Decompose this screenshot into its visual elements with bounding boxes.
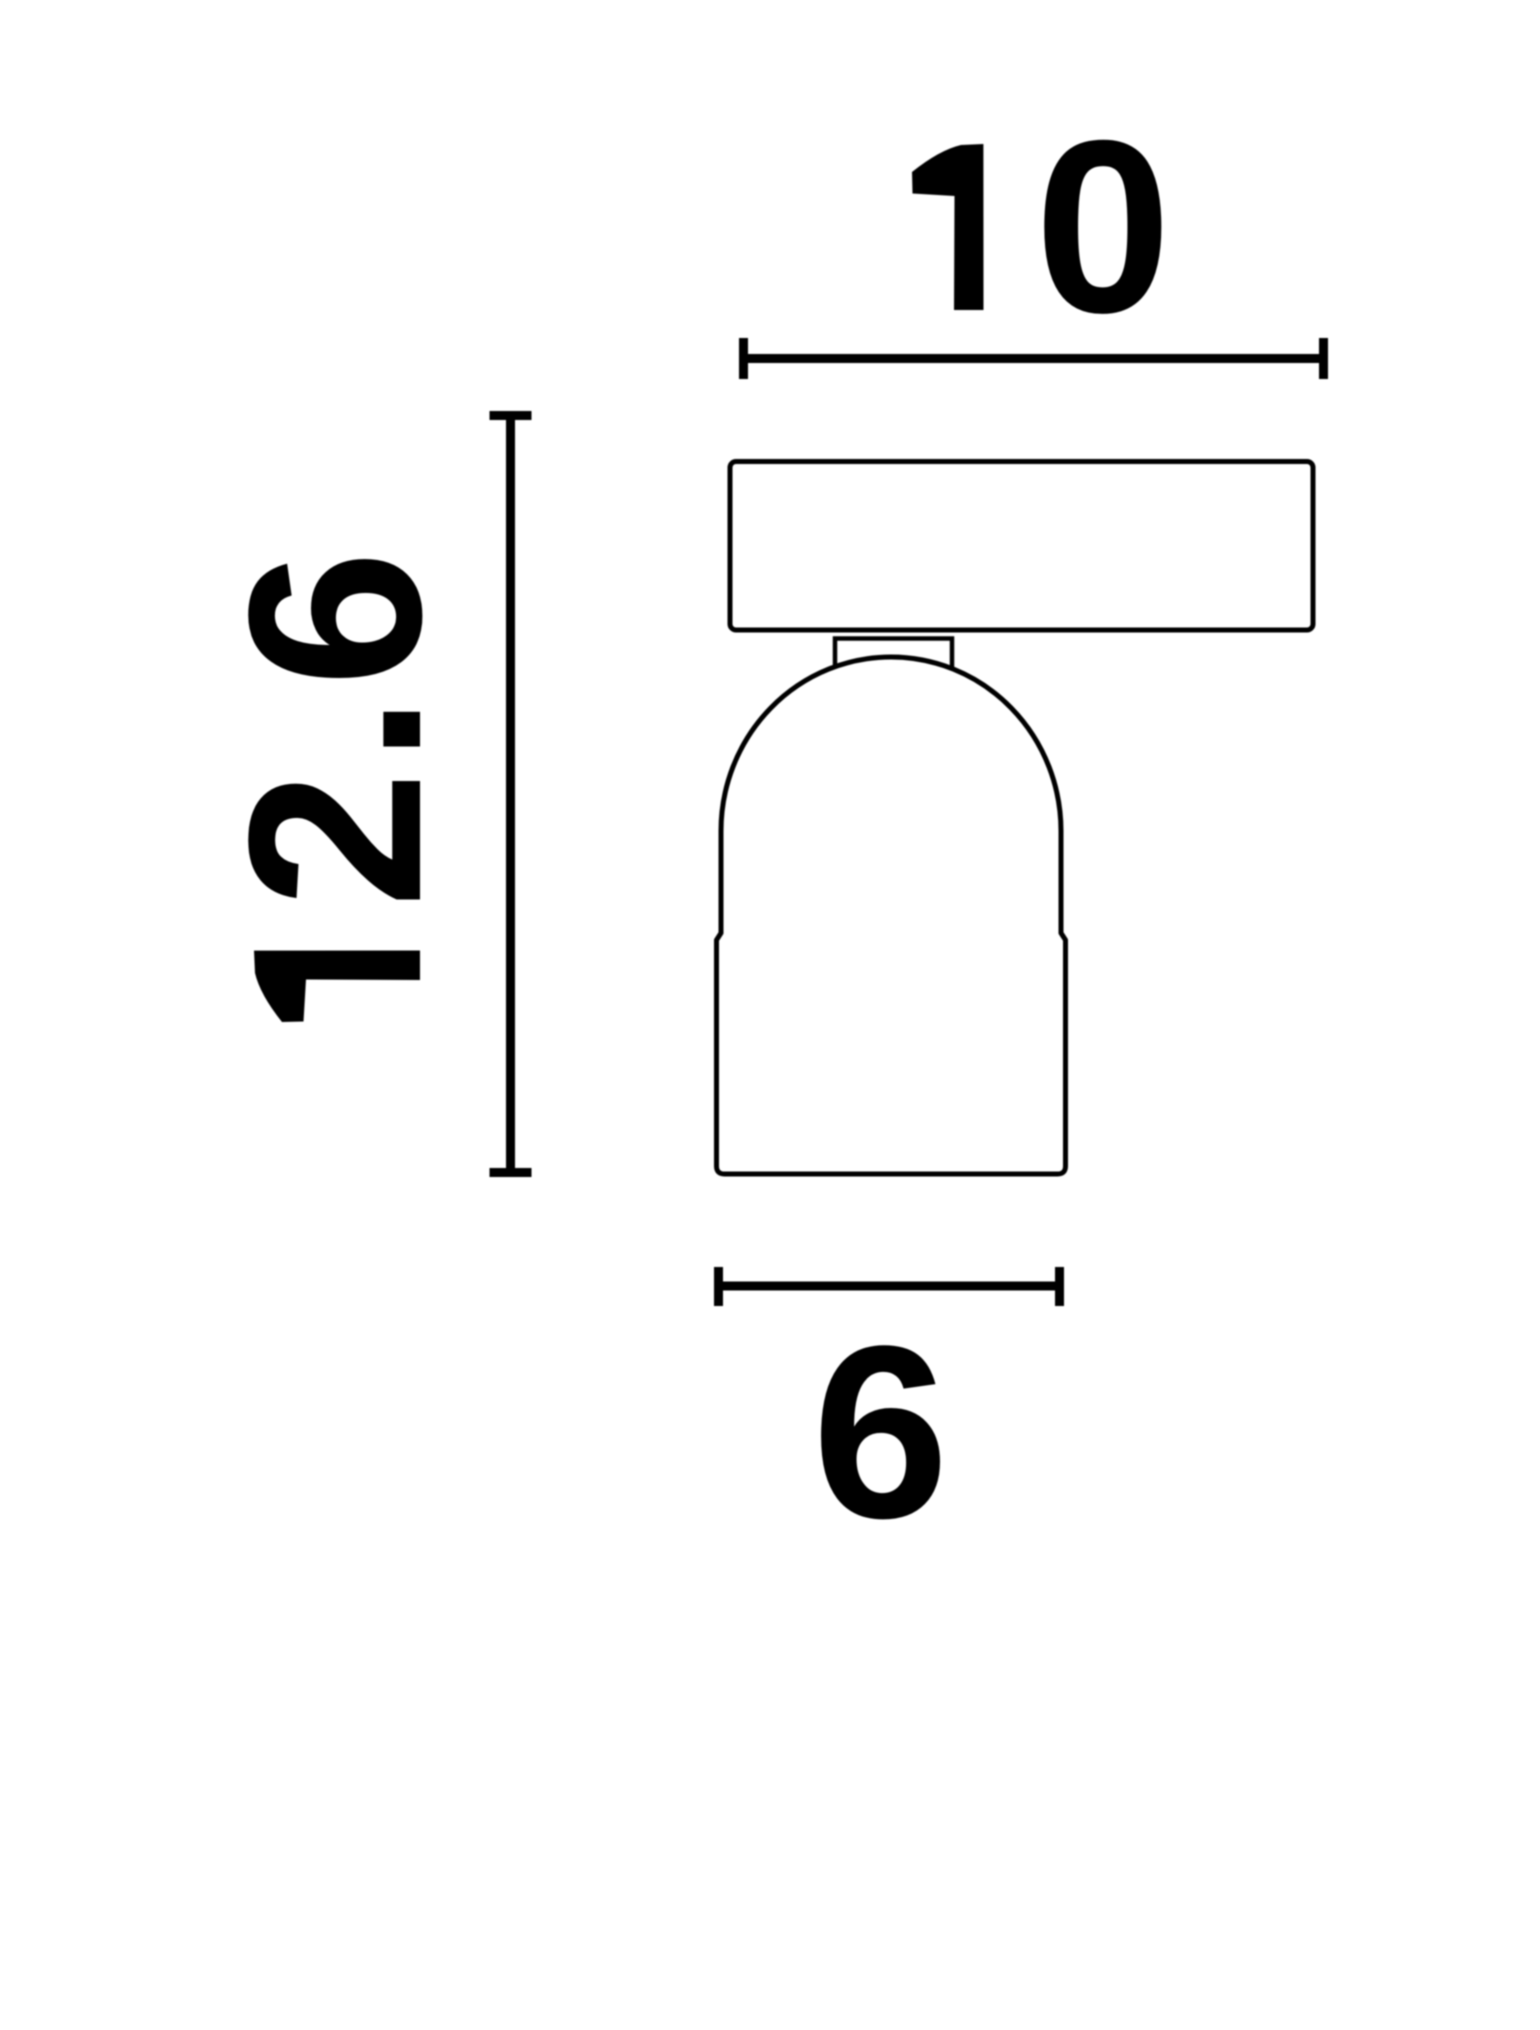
svg-text:6: 6 [198,550,473,687]
svg-text:.: . [198,695,473,763]
svg-text:0: 0 [1035,90,1172,365]
svg-text:2: 2 [198,771,473,908]
svg-text:6: 6 [812,1295,949,1570]
